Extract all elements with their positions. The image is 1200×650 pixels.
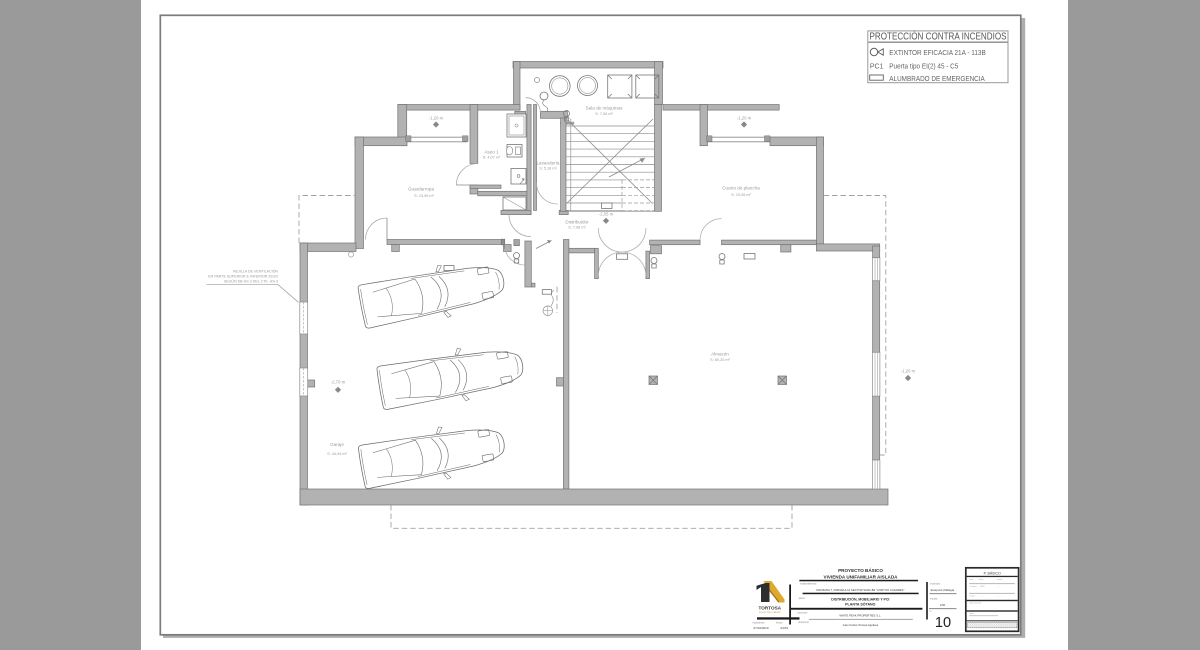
svg-text:PLANTA SÓTANO: PLANTA SÓTANO [845,602,875,607]
svg-text:Estepona (Málaga): Estepona (Málaga) [931,588,955,592]
svg-text:fecha:: fecha: [776,622,783,625]
svg-text:ALUMBRADO DE EMERGENCIA: ALUMBRADO DE EMERGENCIA [889,76,985,83]
svg-text:-2,70 m: -2,70 m [331,379,346,384]
svg-text:1/50: 1/50 [940,603,946,607]
svg-text:Almacén: Almacén [711,352,729,357]
svg-text:Puerta tipo EI(2) 45 - C5: Puerta tipo EI(2) 45 - C5 [889,64,958,71]
svg-text:S: 44,94 m²: S: 44,94 m² [327,452,347,456]
svg-text:VIVIENDA UNIFAMILIAR AISLADA: VIVIENDA UNIFAMILIAR AISLADA [824,574,899,579]
svg-text:S: 19,06 m²: S: 19,06 m² [731,193,751,197]
svg-text:promotor:: promotor: [798,612,809,615]
svg-text:escala:: escala: [930,598,938,601]
svg-text:Lavandería: Lavandería [537,161,560,166]
svg-text:Aseo 1: Aseo 1 [484,150,499,155]
svg-text:S: 7,98 m²: S: 7,98 m² [568,226,586,230]
svg-text:ARQUITECTURA · URBANISMO: ARQUITECTURA · URBANISMO [759,611,781,614]
svg-text:-1,20 m: -1,20 m [901,369,916,374]
svg-text:arquitecto:: arquitecto: [798,621,809,624]
svg-text:expediente:: expediente: [753,622,766,625]
svg-text:observaciones: observaciones [970,602,982,604]
svg-text:DISTRIBUCIÓN, MOBILIARIO Y PCI: DISTRIBUCIÓN, MOBILIARIO Y PCI [831,596,889,601]
svg-text:visado: visado [997,579,1002,581]
svg-text:fase: fase [970,579,973,581]
svg-text:MANZANA 7, PARCELA 14 SECTOR S: MANZANA 7, PARCELA 14 SECTOR SUR2-B2 "CO… [816,588,904,592]
svg-text:-1,20 m: -1,20 m [429,115,444,120]
svg-text:-1,20 m: -1,20 m [737,115,752,120]
svg-text:PROYECTO BÁSICO: PROYECTO BÁSICO [838,567,883,573]
svg-text:firma: firma [970,613,974,615]
svg-text:S: 80,20 m²: S: 80,20 m² [710,358,730,362]
svg-text:P. BÁSICO: P. BÁSICO [984,572,1001,576]
svg-text:Sala de máquinas: Sala de máquinas [586,106,623,111]
svg-text:PC1: PC1 [870,64,884,71]
svg-text:P. básico: P. básico [970,586,977,588]
svg-text:.........: ......... [997,595,1002,597]
svg-text:-2,05 m: -2,05 m [599,211,614,216]
svg-text:SEGÚN DB-HS 3 DEL CTE. HS-3: SEGÚN DB-HS 3 DEL CTE. HS-3 [224,279,278,284]
svg-text:Guardarropa: Guardarropa [408,187,434,192]
svg-text:S: 5,18 m²: S: 5,18 m² [539,167,557,171]
svg-text:07/10/2019: 07/10/2019 [754,626,769,630]
svg-text:10/19: 10/19 [980,586,985,588]
svg-text:S: 4,07 m²: S: 4,07 m² [483,156,501,160]
svg-text:P. ejec.: P. ejec. [970,595,976,597]
svg-text:S: 7,06 m²: S: 7,06 m² [595,112,613,116]
svg-text:emplazamiento:: emplazamiento: [800,583,817,586]
svg-text:Cuarto de plancha: Cuarto de plancha [722,186,760,191]
svg-text:10: 10 [935,615,951,631]
svg-text:EN PARTE SUPERIOR E INFERIOR 2: EN PARTE SUPERIOR E INFERIOR 20x20 [208,275,278,279]
svg-text:WHITE PEAK PROPERTIES S.L.: WHITE PEAK PROPERTIES S.L. [839,613,881,617]
svg-text:REJILLA DE VENTILACIÓN: REJILLA DE VENTILACIÓN [233,269,278,274]
svg-text:fecha: fecha [979,579,983,581]
svg-text:TORTOSA: TORTOSA [759,605,782,610]
svg-text:nº: nº [930,609,932,613]
svg-text:PROTECCIÓN CONTRA INCENDIOS: PROTECCIÓN CONTRA INCENDIOS [870,29,1007,42]
svg-text:plano:: plano: [799,597,806,600]
svg-text:S: 13,95 m²: S: 13,95 m² [414,194,434,198]
svg-text:04/19: 04/19 [781,626,789,630]
svg-text:EXTINTOR EFICACIA 21A - 113B: EXTINTOR EFICACIA 21A - 113B [889,50,986,57]
svg-text:.........: ......... [997,586,1002,588]
svg-text:Juan Carlos Tortosa Aguilera: Juan Carlos Tortosa Aguilera [842,623,878,627]
svg-text:Garaje: Garaje [330,442,344,447]
svg-text:Distribuidor: Distribuidor [565,220,589,225]
svg-text:municipio:: municipio: [930,582,941,585]
